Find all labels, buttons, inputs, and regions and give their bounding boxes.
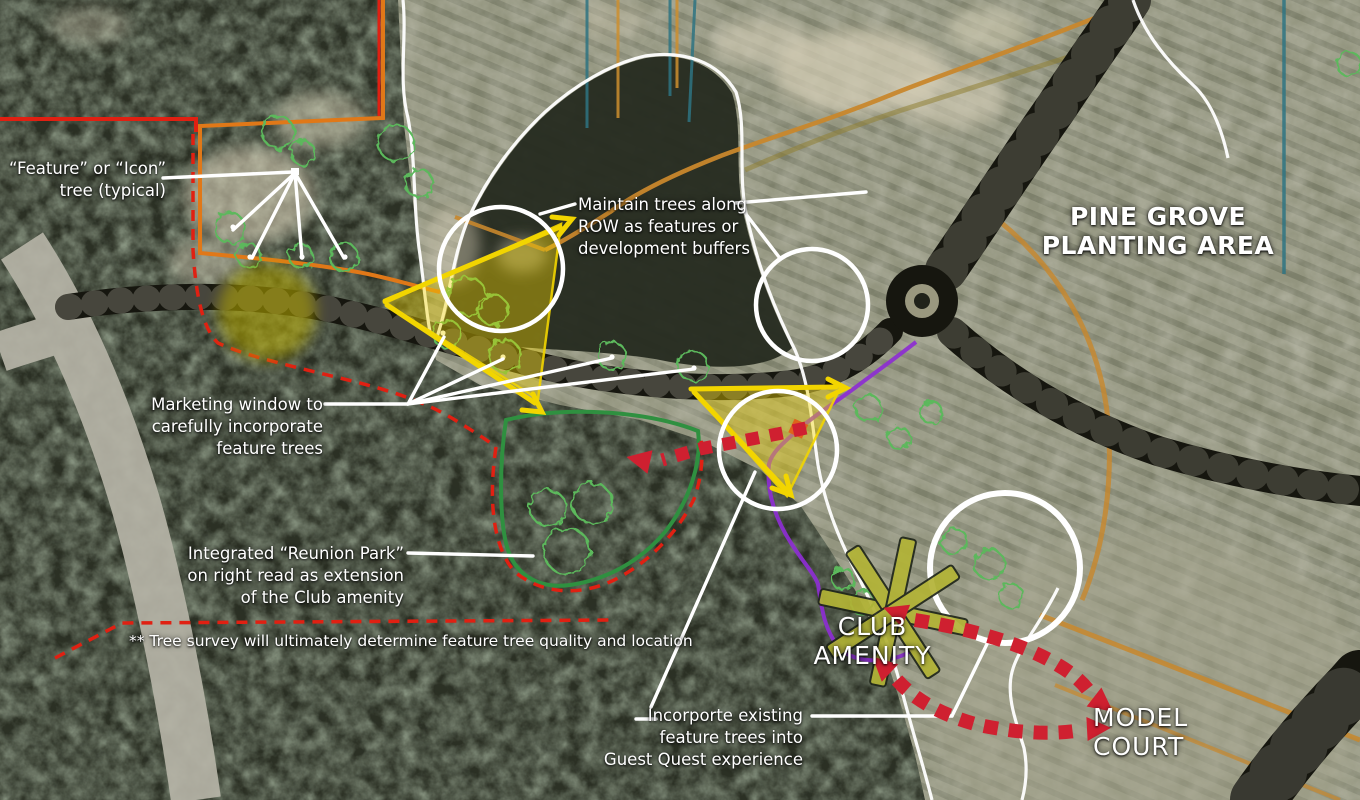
annotation-line: MODEL xyxy=(1093,703,1188,732)
annotation-incorporate: Incorporte existing feature trees into G… xyxy=(560,705,803,771)
annotation-line: Maintain trees along xyxy=(578,194,750,216)
annotation-reunion-park: Integrated “Reunion Park” on right read … xyxy=(150,543,404,609)
annotation-line: PINE GROVE xyxy=(1040,202,1276,231)
annotation-pine-grove: PINE GROVE PLANTING AREA xyxy=(1040,202,1276,260)
annotation-line: CLUB xyxy=(790,612,955,641)
annotation-maintain-trees: Maintain trees along ROW as features or … xyxy=(578,194,750,260)
annotation-line: AMENITY xyxy=(790,641,955,670)
annotated-site-plan: “Feature” or “Icon” tree (typical) Maint… xyxy=(0,0,1360,800)
annotation-line: Integrated “Reunion Park” xyxy=(150,543,404,565)
annotation-line: Guest Quest experience xyxy=(560,749,803,771)
annotation-feature-tree: “Feature” or “Icon” tree (typical) xyxy=(0,158,166,202)
annotation-survey-note: ** Tree survey will ultimately determine… xyxy=(129,630,693,652)
annotation-line: “Feature” or “Icon” xyxy=(0,158,166,180)
annotation-marketing-window: Marketing window to carefully incorporat… xyxy=(120,394,323,460)
annotation-line: carefully incorporate xyxy=(120,416,323,438)
annotation-line: COURT xyxy=(1093,732,1188,761)
roundabout xyxy=(886,265,958,337)
annotation-line: ** Tree survey will ultimately determine… xyxy=(129,630,693,652)
annotation-line: feature trees into xyxy=(560,727,803,749)
annotation-line: on right read as extension xyxy=(150,565,404,587)
feature-tree-highlight-blob xyxy=(218,263,316,361)
annotation-line: tree (typical) xyxy=(0,180,166,202)
annotation-line: Incorporte existing xyxy=(560,705,803,727)
annotation-line: Marketing window to xyxy=(120,394,323,416)
annotation-club-amenity: CLUB AMENITY xyxy=(790,612,955,670)
annotation-line: feature trees xyxy=(120,438,323,460)
annotation-line: PLANTING AREA xyxy=(1040,231,1276,260)
annotation-line: ROW as features or xyxy=(578,216,750,238)
annotation-model-court: MODEL COURT xyxy=(1093,703,1188,761)
annotation-line: of the Club amenity xyxy=(150,587,404,609)
annotation-line: development buffers xyxy=(578,238,750,260)
